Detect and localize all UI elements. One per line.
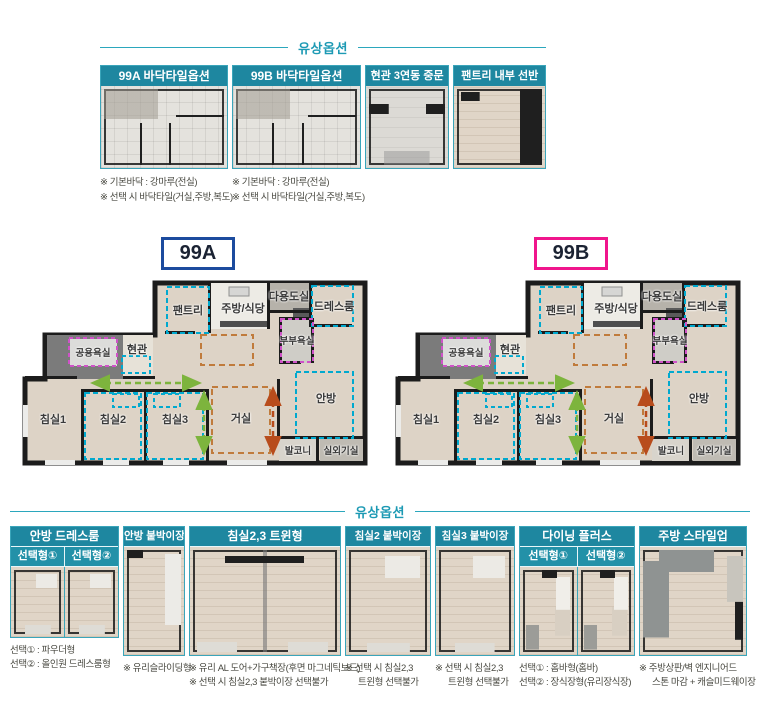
option-notes: ※ 유리슬라이딩형 xyxy=(123,662,185,676)
option-master-dressroom: 안방 드레스룸 선택형① 선택형② 선택① : 파우더형 선택② : 올인원 드… xyxy=(10,526,119,672)
note-line: 선택① : 파우더형 xyxy=(10,644,119,658)
option-bed23-twin: 침실2,3 트윈형 ※ 유리 AL 도어+가구책장(후면 마그네틱보드) ※ 선… xyxy=(189,526,341,690)
top-section-header: 유상옵션 xyxy=(100,38,546,57)
option-master-wardrobe: 안방 붙박이장 ※ 유리슬라이딩형 xyxy=(123,526,185,676)
section-title: 유상옵션 xyxy=(345,502,415,521)
option-bed2-wardrobe: 침실2 붙박이장 ※ 선택 시 침실2,3 트윈형 선택불가 xyxy=(345,526,431,690)
option-tabs: 선택형① 선택형② xyxy=(11,546,118,566)
room-label-living: 거실 xyxy=(604,410,624,426)
note-line: ※ 기본바닥 : 강마루(전실) xyxy=(100,175,232,190)
room-label-living: 거실 xyxy=(231,410,251,426)
plan-99b: 99B 팬트리 주방/식당 다용도실 드레스룸 부부욕실 공용욕실 현관 침실1… xyxy=(388,237,748,472)
floor-plan-99a: 팬트리 주방/식당 다용도실 드레스룸 부부욕실 공용욕실 현관 침실1 침실2… xyxy=(15,277,375,472)
option-thumbnail-pantry xyxy=(454,86,545,168)
note-line: ※ 선택 시 바닥타일(거실,주방,복도) xyxy=(232,190,364,205)
option-header: 다이닝 플러스 xyxy=(520,527,634,546)
room-label-bed2: 침실2 xyxy=(473,411,499,427)
option-header: 팬트리 내부 선반 xyxy=(454,66,545,86)
note-line: 선택② : 올인원 드레스룸형 xyxy=(10,658,119,672)
plan-tag-99b: 99B xyxy=(534,237,608,270)
room-label-common-bath: 공용욕실 xyxy=(449,345,484,359)
option-thumbnails xyxy=(11,566,118,637)
bottom-section-header: 유상옵션 xyxy=(10,502,750,521)
room-label-dressroom: 드레스룸 xyxy=(314,298,354,314)
room-label-balcony: 발코니 xyxy=(285,443,311,457)
option-header: 침실3 붙박이장 xyxy=(436,527,514,546)
plan-tag-99a: 99A xyxy=(161,237,235,270)
option-thumbnails xyxy=(640,546,746,655)
divider-line xyxy=(10,511,345,512)
note-line: ※ 선택 시 바닥타일(거실,주방,복도) xyxy=(100,190,232,205)
option-header: 현관 3연동 중문 xyxy=(366,66,449,86)
option-kitchen-styleup: 주방 스타일업 ※ 주방상판/벽 엔지니어드 스톤 마감 + 캐슬미드웨이장 xyxy=(639,526,747,690)
room-label-master-bath: 부부욕실 xyxy=(653,333,688,347)
divider-line xyxy=(415,511,750,512)
option-notes: 선택① : 파우더형 선택② : 올인원 드레스룸형 xyxy=(10,644,119,672)
option-tab-1: 선택형① xyxy=(11,547,64,566)
option-thumbnails xyxy=(346,546,430,655)
option-box: 안방 붙박이장 xyxy=(123,526,185,656)
room-label-common-bath: 공용욕실 xyxy=(76,345,111,359)
room-label-master: 안방 xyxy=(689,390,709,406)
top-options-section: 유상옵션 99A 바닥타일옵션 99B 바닥타일옵션 현관 3연동 중문 팬트리… xyxy=(100,0,546,205)
note-line: ※ 선택 시 침실2,3 xyxy=(345,662,431,676)
option-tab-2: 선택형② xyxy=(577,547,635,566)
option-thumbnail xyxy=(190,547,340,655)
room-label-entrance: 현관 xyxy=(127,341,147,357)
section-title: 유상옵션 xyxy=(288,38,358,57)
room-label-kitchen: 주방/식당 xyxy=(221,300,265,316)
room-label-master: 안방 xyxy=(316,390,336,406)
note-line: 스톤 마감 + 캐슬미드웨이장 xyxy=(639,676,747,690)
option-box: 침실2 붙박이장 xyxy=(345,526,431,656)
room-label-bed3: 침실3 xyxy=(162,411,188,427)
option-notes: ※ 유리 AL 도어+가구책장(후면 마그네틱보드) ※ 선택 시 침실2,3 … xyxy=(189,662,341,690)
option-thumbnails xyxy=(436,546,514,655)
notes-99a: ※ 기본바닥 : 강마루(전실) ※ 선택 시 바닥타일(거실,주방,복도) xyxy=(100,175,232,205)
floorplan-brochure-page: 유상옵션 99A 바닥타일옵션 99B 바닥타일옵션 현관 3연동 중문 팬트리… xyxy=(0,0,760,721)
option-thumbnails xyxy=(520,566,634,655)
option-box-99a-floor-tile: 99A 바닥타일옵션 xyxy=(100,65,228,169)
option-notes: 선택① : 홈바형(홈바) 선택② : 장식장형(유리장식장) xyxy=(519,662,635,690)
note-line: ※ 주방상판/벽 엔지니어드 xyxy=(639,662,747,676)
option-box: 안방 드레스룸 선택형① 선택형② xyxy=(10,526,119,638)
option-thumbnail-entrance xyxy=(366,86,449,168)
room-label-bed1: 침실1 xyxy=(413,411,439,427)
option-thumbnail xyxy=(436,547,514,655)
option-header: 안방 붙박이장 xyxy=(124,527,184,546)
room-label-bed3: 침실3 xyxy=(535,411,561,427)
room-label-bed2: 침실2 xyxy=(100,411,126,427)
divider-line xyxy=(358,47,546,48)
room-label-pantry: 팬트리 xyxy=(173,302,203,318)
option-thumbnail-floorplan xyxy=(101,86,227,168)
option-header: 안방 드레스룸 xyxy=(11,527,118,546)
option-header: 99A 바닥타일옵션 xyxy=(101,66,227,86)
option-notes: ※ 선택 시 침실2,3 트윈형 선택불가 xyxy=(345,662,431,690)
room-label-utility: 다용도실 xyxy=(269,288,309,304)
notes-99b: ※ 기본바닥 : 강마루(전실) ※ 선택 시 바닥타일(거실,주방,복도) xyxy=(232,175,364,205)
room-label-entrance: 현관 xyxy=(500,341,520,357)
option-thumbnail-type2 xyxy=(577,567,635,655)
option-header: 침실2 붙박이장 xyxy=(346,527,430,546)
note-line: ※ 기본바닥 : 강마루(전실) xyxy=(232,175,364,190)
option-box: 다이닝 플러스 선택형① 선택형② xyxy=(519,526,635,656)
room-label-balcony: 발코니 xyxy=(658,443,684,457)
option-thumbnail-type2 xyxy=(64,567,118,637)
top-notes-row: ※ 기본바닥 : 강마루(전실) ※ 선택 시 바닥타일(거실,주방,복도) ※… xyxy=(100,175,546,205)
option-box: 침실3 붙박이장 xyxy=(435,526,515,656)
room-label-pantry: 팬트리 xyxy=(546,302,576,318)
option-box: 주방 스타일업 xyxy=(639,526,747,656)
option-thumbnail-type1 xyxy=(11,567,64,637)
note-line: 트윈형 선택불가 xyxy=(345,676,431,690)
option-thumbnail xyxy=(124,547,184,655)
note-line: ※ 선택 시 침실2,3 붙박이장 선택불가 xyxy=(189,676,341,690)
option-thumbnail-floorplan xyxy=(233,86,359,168)
option-thumbnail xyxy=(346,547,430,655)
option-header: 주방 스타일업 xyxy=(640,527,746,546)
note-line: ※ 선택 시 침실2,3 xyxy=(435,662,515,676)
option-box-pantry-shelf: 팬트리 내부 선반 xyxy=(453,65,546,169)
option-thumbnails xyxy=(124,546,184,655)
option-thumbnail xyxy=(640,547,746,655)
floor-plan-99b: 팬트리 주방/식당 다용도실 드레스룸 부부욕실 공용욕실 현관 침실1 침실2… xyxy=(388,277,748,472)
option-header: 침실2,3 트윈형 xyxy=(190,527,340,546)
room-label-master-bath: 부부욕실 xyxy=(280,333,315,347)
top-options-row: 99A 바닥타일옵션 99B 바닥타일옵션 현관 3연동 중문 팬트리 내부 선… xyxy=(100,65,546,169)
note-line: ※ 유리슬라이딩형 xyxy=(123,662,185,676)
option-tabs: 선택형① 선택형② xyxy=(520,546,634,566)
note-line: 선택② : 장식장형(유리장식장) xyxy=(519,676,635,690)
option-thumbnails xyxy=(190,546,340,655)
room-label-bed1: 침실1 xyxy=(40,411,66,427)
note-line: ※ 유리 AL 도어+가구책장(후면 마그네틱보드) xyxy=(189,662,341,676)
option-box-99b-floor-tile: 99B 바닥타일옵션 xyxy=(232,65,360,169)
divider-line xyxy=(100,47,288,48)
note-line: 트윈형 선택불가 xyxy=(435,676,515,690)
option-tab-2: 선택형② xyxy=(64,547,118,566)
option-bed3-wardrobe: 침실3 붙박이장 ※ 선택 시 침실2,3 트윈형 선택불가 xyxy=(435,526,515,690)
option-tab-1: 선택형① xyxy=(520,547,577,566)
note-line: 선택① : 홈바형(홈바) xyxy=(519,662,635,676)
bottom-options-row: 안방 드레스룸 선택형① 선택형② 선택① : 파우더형 선택② : 올인원 드… xyxy=(10,526,750,690)
option-box: 침실2,3 트윈형 xyxy=(189,526,341,656)
room-label-dressroom: 드레스룸 xyxy=(687,298,727,314)
room-label-outdoor-unit: 실외기실 xyxy=(697,443,732,457)
plan-99a: 99A 팬트리 주방/식당 다용도실 드레스룸 부부욕실 공용욕실 현관 침실1… xyxy=(15,237,375,472)
option-header: 99B 바닥타일옵션 xyxy=(233,66,359,86)
bottom-options-section: 유상옵션 안방 드레스룸 선택형① 선택형② 선택① : 파우더형 xyxy=(10,502,750,690)
room-label-utility: 다용도실 xyxy=(642,288,682,304)
option-notes: ※ 선택 시 침실2,3 트윈형 선택불가 xyxy=(435,662,515,690)
option-dining-plus: 다이닝 플러스 선택형① 선택형② 선택① : 홈바형(홈바) 선택② : 장식… xyxy=(519,526,635,690)
option-thumbnail-type1 xyxy=(520,567,577,655)
option-box-entrance-door: 현관 3연동 중문 xyxy=(365,65,450,169)
room-label-kitchen: 주방/식당 xyxy=(594,300,638,316)
floor-plans-section: 99A 팬트리 주방/식당 다용도실 드레스룸 부부욕실 공용욕실 현관 침실1… xyxy=(15,237,760,472)
option-notes: ※ 주방상판/벽 엔지니어드 스톤 마감 + 캐슬미드웨이장 xyxy=(639,662,747,690)
room-label-outdoor-unit: 실외기실 xyxy=(324,443,359,457)
